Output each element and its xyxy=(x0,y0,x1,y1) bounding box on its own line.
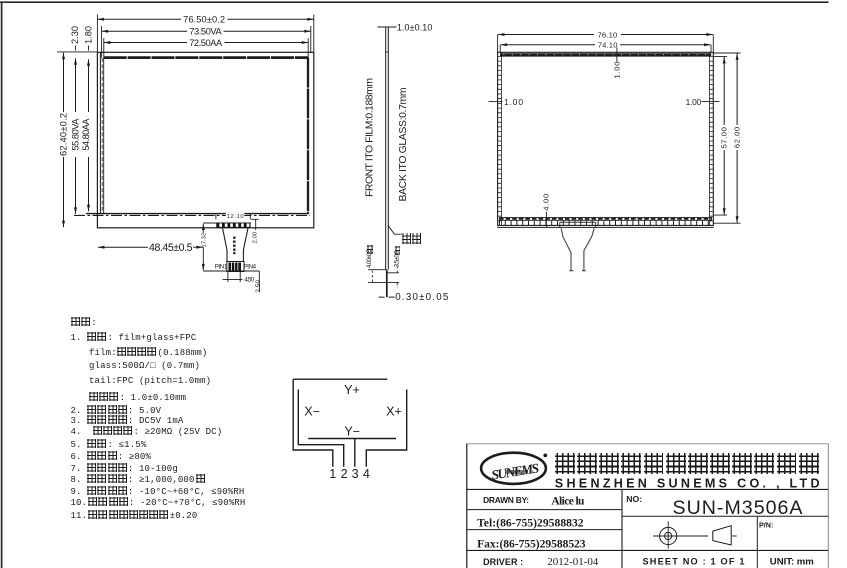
svg-text:X−: X− xyxy=(304,404,320,418)
svg-text:76.50±0.2: 76.50±0.2 xyxy=(183,15,225,25)
svg-text:12.10: 12.10 xyxy=(227,214,245,220)
svg-text:72.50AA: 72.50AA xyxy=(189,38,223,48)
svg-text:73.50VA: 73.50VA xyxy=(189,27,222,37)
svg-text:PIN1: PIN1 xyxy=(215,263,228,270)
svg-text:SHENZHEN SUNEMS CO. , LTD: SHENZHEN SUNEMS CO. , LTD xyxy=(555,477,821,491)
svg-text:2.00: 2.00 xyxy=(252,231,258,243)
svg-text:57.00: 57.00 xyxy=(719,127,728,148)
svg-text:1.80: 1.80 xyxy=(83,26,93,44)
svg-text:62.40±0.2: 62.40±0.2 xyxy=(58,113,68,156)
svg-text:Tel:(86-755)29588832: Tel:(86-755)29588832 xyxy=(477,516,584,529)
svg-text:P/N:: P/N: xyxy=(759,521,773,530)
svg-text:2: 2 xyxy=(341,467,348,481)
svg-text:2012-01-04: 2012-01-04 xyxy=(547,556,599,568)
svg-text:1.0±0.10: 1.0±0.10 xyxy=(397,22,433,32)
svg-text:Y+: Y+ xyxy=(344,383,360,397)
svg-text:X+: X+ xyxy=(386,404,402,418)
svg-text:2.30: 2.30 xyxy=(70,26,80,44)
svg-text:Y−: Y− xyxy=(344,425,360,439)
svg-text:DRAWN BY:: DRAWN BY: xyxy=(483,495,529,505)
svg-text:76.10: 76.10 xyxy=(598,30,618,39)
svg-text:62.00: 62.00 xyxy=(733,127,742,148)
svg-text:1: 1 xyxy=(329,467,336,481)
svg-text:48.45±0.5: 48.45±0.5 xyxy=(149,242,193,254)
svg-text:Alice lu: Alice lu xyxy=(551,495,585,507)
svg-text:0.30±0.05: 0.30±0.05 xyxy=(395,292,449,303)
svg-text:UNIT: mm: UNIT: mm xyxy=(770,556,814,567)
svg-text:4.50: 4.50 xyxy=(244,277,254,284)
svg-text:DRIVER :: DRIVER : xyxy=(483,557,523,567)
svg-text:1.00: 1.00 xyxy=(504,97,523,107)
svg-text:Fax:(86-755)29588523: Fax:(86-755)29588523 xyxy=(477,537,586,550)
svg-text:4.00: 4.00 xyxy=(541,194,550,211)
svg-text:SHEET NO : 1 OF 1: SHEET NO : 1 OF 1 xyxy=(643,556,745,566)
svg-text:55.80VA: 55.80VA xyxy=(70,118,80,151)
svg-text:NO:: NO: xyxy=(626,494,642,504)
svg-text:2.50: 2.50 xyxy=(255,280,262,293)
svg-text:54.80AA: 54.80AA xyxy=(81,118,91,151)
svg-text:3: 3 xyxy=(352,467,359,481)
svg-text:BACK ITO GLASS:0.7mm: BACK ITO GLASS:0.7mm xyxy=(398,87,409,201)
svg-text:4: 4 xyxy=(363,467,370,481)
svg-text:1.00: 1.00 xyxy=(612,62,621,79)
svg-text:74.10: 74.10 xyxy=(598,41,618,50)
svg-text:SUN-M3506A: SUN-M3506A xyxy=(673,497,804,519)
svg-text:FRONT ITO FILM:0.188mm: FRONT ITO FILM:0.188mm xyxy=(365,78,376,197)
svg-text:1.00: 1.00 xyxy=(686,97,702,107)
svg-text:17.32: 17.32 xyxy=(202,233,208,248)
svg-text:PIN4: PIN4 xyxy=(244,263,257,270)
